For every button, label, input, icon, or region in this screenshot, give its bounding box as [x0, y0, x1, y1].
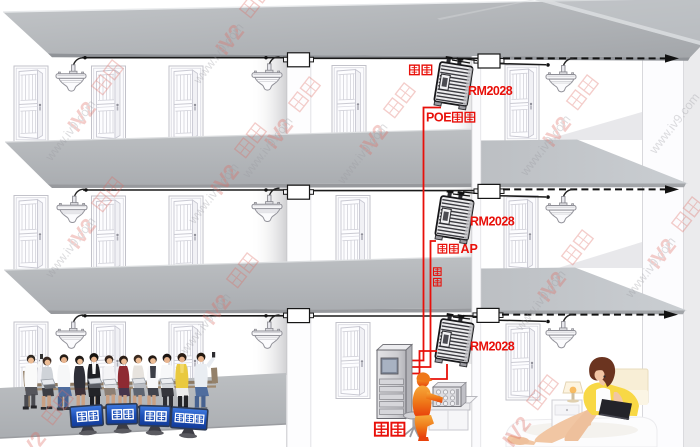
svg-text:AP: AP [461, 242, 478, 256]
svg-text:RM2028: RM2028 [470, 340, 515, 354]
svg-text:RM2028: RM2028 [468, 84, 513, 98]
svg-text:POE: POE [426, 111, 451, 125]
svg-text:RM2028: RM2028 [470, 215, 515, 229]
